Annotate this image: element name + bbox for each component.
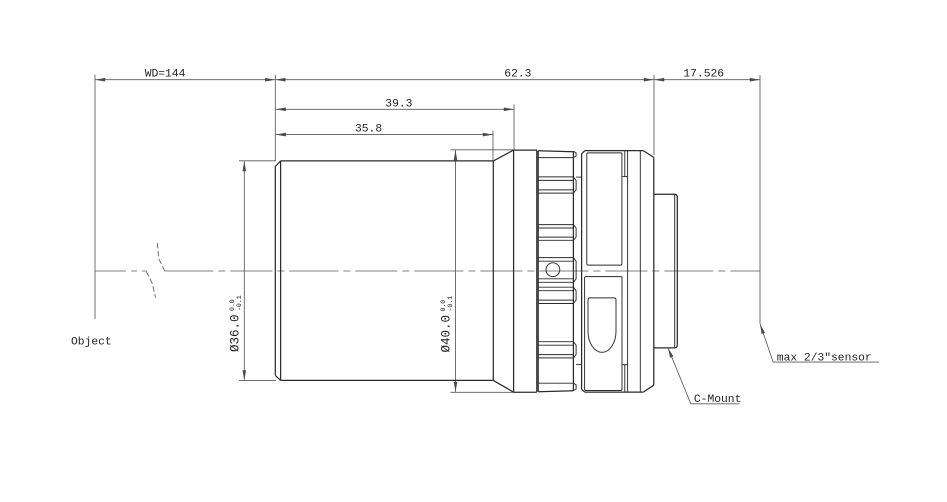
svg-text:35.8: 35.8 [355,124,382,136]
svg-text:-0.1: -0.1 [447,296,454,312]
svg-text:17.526: 17.526 [683,69,724,81]
svg-text:max 2/3″sensor: max 2/3″sensor [777,353,872,365]
svg-text:C-Mount: C-Mount [694,394,741,406]
svg-text:-0.1: -0.1 [236,295,243,311]
svg-text:WD=144: WD=144 [145,68,186,80]
svg-text:Ø40.0: Ø40.0 [440,315,454,353]
svg-text:Ø36.0: Ø36.0 [229,314,243,352]
svg-text:62.3: 62.3 [504,68,531,80]
svg-text:39.3: 39.3 [385,98,412,110]
svg-text:0.0: 0.0 [229,299,236,311]
svg-text:Object: Object [71,337,112,349]
svg-text:0.0: 0.0 [440,300,447,312]
